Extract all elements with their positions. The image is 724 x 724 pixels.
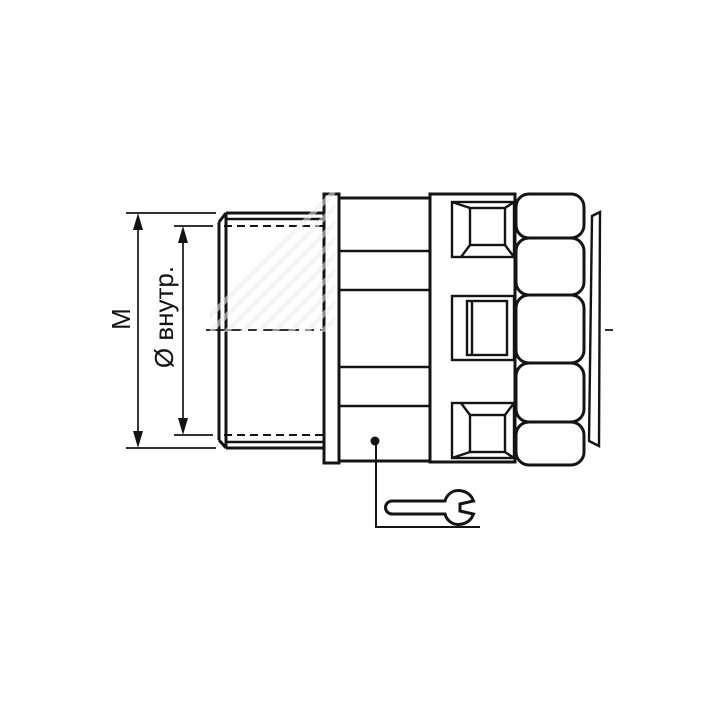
end-washer bbox=[589, 212, 600, 446]
screw-boss-top-head bbox=[470, 208, 505, 245]
dimension-m-label: M bbox=[106, 308, 136, 330]
screw-boss-bottom bbox=[452, 403, 514, 458]
screw-boss-top bbox=[452, 202, 514, 257]
grip-nut-lobe bbox=[516, 238, 584, 295]
grip-nut bbox=[516, 194, 584, 465]
dimension-inner-diameter: Ø внутр. bbox=[149, 226, 213, 435]
grip-nut-lobe bbox=[516, 363, 584, 422]
screw-boss-bottom-head bbox=[470, 415, 505, 452]
clamp-section bbox=[430, 194, 515, 462]
gland-body-outline bbox=[339, 198, 430, 461]
drawing-canvas: M Ø внутр. bbox=[0, 0, 724, 724]
grip-nut-lobe bbox=[516, 295, 584, 363]
gland-body bbox=[339, 198, 430, 461]
grip-nut-lobe bbox=[516, 194, 584, 238]
dimension-inner-diameter-label: Ø внутр. bbox=[149, 266, 179, 368]
grip-nut-lobe bbox=[516, 422, 584, 465]
wrench-icon bbox=[386, 491, 474, 525]
screw-boss-middle bbox=[452, 296, 514, 360]
leader-dot-icon bbox=[371, 437, 380, 446]
fitting-technical-drawing: M Ø внутр. bbox=[0, 0, 724, 724]
